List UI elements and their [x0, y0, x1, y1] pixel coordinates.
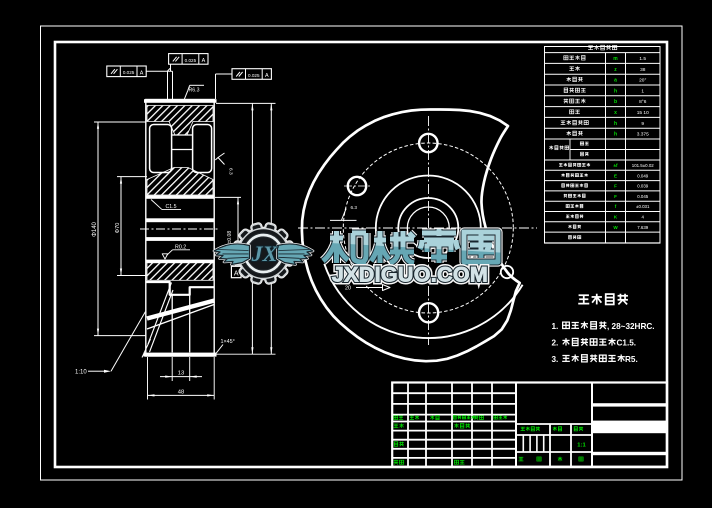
- svg-text:1:1: 1:1: [577, 443, 586, 449]
- svg-text:101.5±0.02: 101.5±0.02: [632, 163, 655, 168]
- svg-text:8°6: 8°6: [639, 99, 647, 105]
- svg-text:A: A: [265, 73, 269, 79]
- svg-text:0.045: 0.045: [637, 194, 649, 199]
- svg-text:13: 13: [178, 371, 184, 377]
- svg-text:JXDIGUO.COM: JXDIGUO.COM: [332, 263, 488, 287]
- svg-text:W: W: [613, 225, 618, 230]
- svg-text:A: A: [202, 58, 206, 64]
- svg-text:0.025: 0.025: [123, 70, 135, 75]
- svg-text:a: a: [614, 78, 617, 84]
- svg-text:h: h: [614, 121, 617, 127]
- svg-text:6.3: 6.3: [228, 168, 234, 175]
- svg-text:b: b: [614, 99, 617, 105]
- svg-text:48: 48: [178, 389, 184, 395]
- svg-text:A: A: [234, 271, 239, 278]
- svg-text:0.025: 0.025: [185, 58, 197, 63]
- svg-text:0.039: 0.039: [637, 184, 649, 189]
- svg-text:h: h: [614, 88, 617, 94]
- svg-text:15 10: 15 10: [637, 110, 649, 116]
- svg-text:Φ70: Φ70: [115, 223, 121, 234]
- svg-text:JX: JX: [251, 241, 279, 266]
- svg-text:0.025: 0.025: [248, 73, 260, 78]
- svg-text:x: x: [614, 110, 617, 116]
- svg-text:C1.5.: C1.5.: [617, 339, 637, 348]
- svg-text:C1.5: C1.5: [166, 204, 177, 210]
- svg-text:9: 9: [641, 121, 644, 127]
- svg-text:38: 38: [640, 67, 646, 73]
- svg-text:3.375: 3.375: [637, 132, 649, 138]
- svg-text:m: m: [613, 56, 618, 62]
- svg-text:1:10: 1:10: [75, 369, 87, 375]
- svg-text:1.5: 1.5: [639, 56, 646, 62]
- svg-text:1: 1: [641, 88, 644, 94]
- svg-text:1×45°: 1×45°: [221, 339, 235, 345]
- svg-text:, 28~32HRC.: , 28~32HRC.: [607, 322, 655, 331]
- svg-text:3.: 3.: [552, 355, 559, 364]
- svg-text:0.049: 0.049: [637, 173, 649, 178]
- svg-text:2.: 2.: [552, 339, 559, 348]
- svg-text:R0.2: R0.2: [175, 245, 186, 251]
- svg-text:F: F: [614, 184, 617, 189]
- svg-text:F: F: [614, 194, 617, 199]
- svg-text:1.: 1.: [552, 322, 559, 331]
- svg-text:6.3: 6.3: [351, 205, 358, 210]
- svg-text:A: A: [140, 70, 144, 76]
- svg-text:7.639: 7.639: [637, 225, 649, 230]
- svg-text:Φ140: Φ140: [92, 221, 98, 236]
- svg-text:R5.: R5.: [625, 355, 638, 364]
- svg-text:R6.3: R6.3: [189, 88, 200, 94]
- svg-text:E: E: [614, 173, 617, 178]
- svg-text:±f: ±f: [613, 163, 618, 168]
- svg-text:h: h: [614, 132, 617, 138]
- svg-text:20°: 20°: [639, 78, 646, 84]
- svg-text:±0.031: ±0.031: [636, 204, 650, 209]
